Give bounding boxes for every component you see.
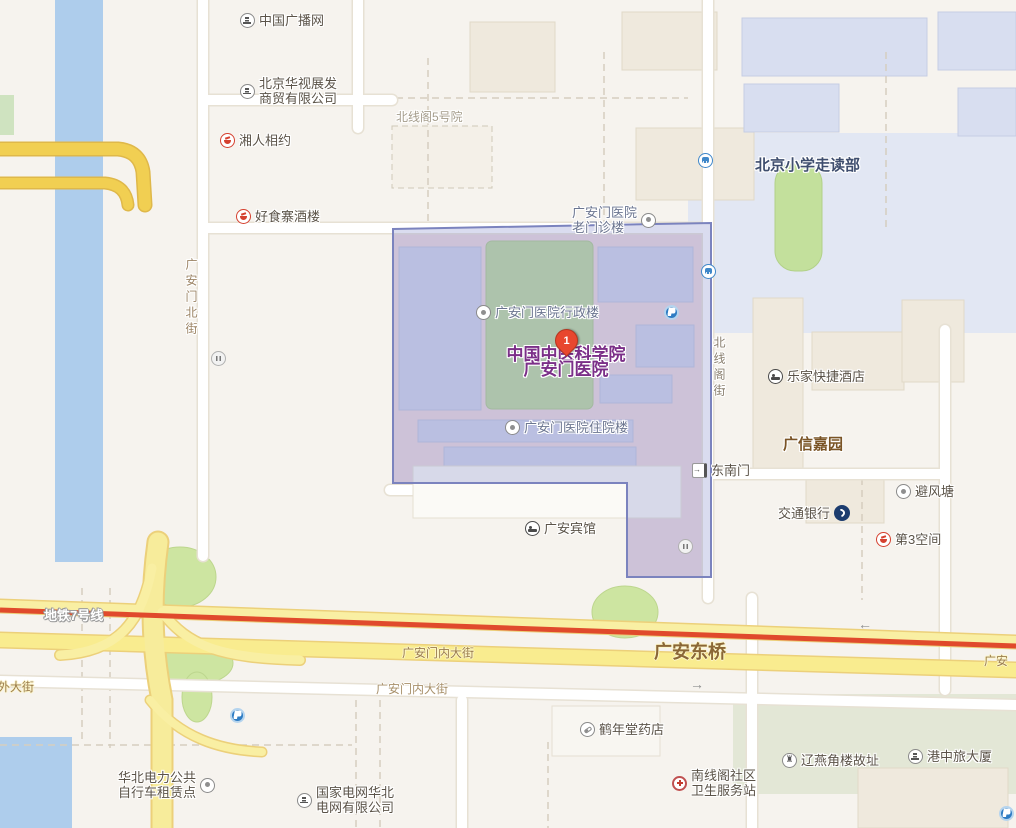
toilet-icon bbox=[678, 539, 693, 554]
river bbox=[55, 0, 103, 562]
parking-icon-2[interactable] bbox=[230, 708, 245, 723]
poi-southeast-gate[interactable]: 东南门 bbox=[692, 463, 750, 478]
bus-icon bbox=[701, 264, 716, 279]
poi-inpatient-building[interactable]: 广安门医院住院楼 bbox=[505, 420, 628, 435]
hotel-icon bbox=[768, 369, 783, 384]
monument-icon bbox=[782, 753, 797, 768]
poi-bike-rental-point[interactable]: 华北电力公共 自行车租赁点 bbox=[118, 770, 215, 800]
restaurant-icon bbox=[220, 133, 235, 148]
map-canvas[interactable]: 中国广播网 北京华视展发 商贸有限公司 湘人相约 好食寨酒楼 北京小学走读部 广… bbox=[0, 0, 1016, 828]
river-south bbox=[0, 737, 72, 828]
poi-admin-building[interactable]: 广安门医院行政楼 bbox=[476, 305, 599, 320]
parking-icon bbox=[999, 806, 1014, 821]
poi-haoshizhai-restaurant[interactable]: 好食寨酒楼 bbox=[236, 209, 320, 224]
parking-icon-3[interactable] bbox=[999, 806, 1014, 821]
toilet-icon-1[interactable] bbox=[678, 539, 693, 554]
dot-icon bbox=[505, 420, 520, 435]
building-icon bbox=[297, 793, 312, 808]
poi-guangan-hotel[interactable]: 广安宾馆 bbox=[525, 521, 596, 536]
building-icon bbox=[240, 13, 255, 28]
arrow-east-icon: → bbox=[690, 676, 704, 692]
label-metro-line-7: 地铁7号线 bbox=[44, 605, 103, 624]
label-guangan-cut: 广安 bbox=[984, 652, 1008, 669]
poi-beijing-huashi-company[interactable]: 北京华视展发 商贸有限公司 bbox=[240, 76, 337, 106]
label-wai-dajie: 外大街 bbox=[0, 678, 34, 695]
dot-icon bbox=[896, 484, 911, 499]
dot-icon bbox=[641, 213, 656, 228]
poi-beijing-primary-school[interactable]: 北京小学走读部 bbox=[755, 158, 860, 173]
poi-guangxin-jiayuan[interactable]: 广信嘉园 bbox=[783, 437, 843, 452]
pharmacy-icon bbox=[580, 722, 595, 737]
building-icon bbox=[908, 749, 923, 764]
poi-xiangren-restaurant[interactable]: 湘人相约 bbox=[220, 133, 291, 148]
toilet-icon-2[interactable] bbox=[211, 351, 226, 366]
poi-bank-of-communications[interactable]: 交通银行 bbox=[778, 505, 850, 521]
bus-icon bbox=[698, 153, 713, 168]
bus-stop-icon[interactable] bbox=[698, 153, 713, 168]
building-icon bbox=[240, 84, 255, 99]
parking-icon bbox=[230, 708, 245, 723]
dot-icon bbox=[476, 305, 491, 320]
poi-china-radio-net[interactable]: 中国广播网 bbox=[240, 13, 324, 28]
label-guanganmen-north-street: 广安门北街 bbox=[184, 258, 198, 338]
poi-bifengtang[interactable]: 避风塘 bbox=[896, 484, 954, 499]
poi-state-grid-north-china[interactable]: 国家电网华北 电网有限公司 bbox=[297, 785, 394, 815]
bank-logo-icon bbox=[834, 505, 850, 521]
poi-lejia-express-hotel[interactable]: 乐家快捷酒店 bbox=[768, 369, 865, 384]
poi-old-outpatient-building[interactable]: 广安门医院 老门诊楼 bbox=[572, 205, 656, 235]
toilet-icon bbox=[211, 351, 226, 366]
poi-nanxiange-clinic[interactable]: 南线阁社区 卫生服务站 bbox=[672, 768, 756, 798]
poi-heniantang-pharmacy[interactable]: 鹤年堂药店 bbox=[580, 722, 664, 737]
map-base-layer bbox=[0, 0, 1016, 828]
restaurant-icon bbox=[236, 209, 251, 224]
label-guanganmennei-street-1: 广安门内大街 bbox=[402, 644, 474, 661]
poi-hk-cts-building[interactable]: 港中旅大厦 bbox=[908, 749, 992, 764]
dot-icon bbox=[200, 778, 215, 793]
gate-icon bbox=[692, 463, 707, 478]
label-guanganmennei-street-2: 广安门内大街 bbox=[376, 680, 448, 697]
poi-no3-space[interactable]: 第3空间 bbox=[876, 532, 941, 547]
parking-icon bbox=[664, 305, 679, 320]
poi-liaoyan-corner-tower-site[interactable]: 辽燕角楼故址 bbox=[782, 753, 879, 768]
label-beixiange-yard5[interactable]: 北线阁5号院 bbox=[396, 110, 463, 125]
label-guangan-east-bridge: 广安东桥 bbox=[654, 638, 726, 664]
label-beixiange-street: 北线阁街 bbox=[712, 336, 726, 400]
red-cross-icon bbox=[672, 776, 687, 791]
bus-stop-icon[interactable] bbox=[701, 264, 716, 279]
hotel-icon bbox=[525, 521, 540, 536]
restaurant-icon bbox=[876, 532, 891, 547]
arrow-west-icon: ← bbox=[858, 616, 872, 632]
parking-icon-1[interactable] bbox=[664, 305, 679, 320]
